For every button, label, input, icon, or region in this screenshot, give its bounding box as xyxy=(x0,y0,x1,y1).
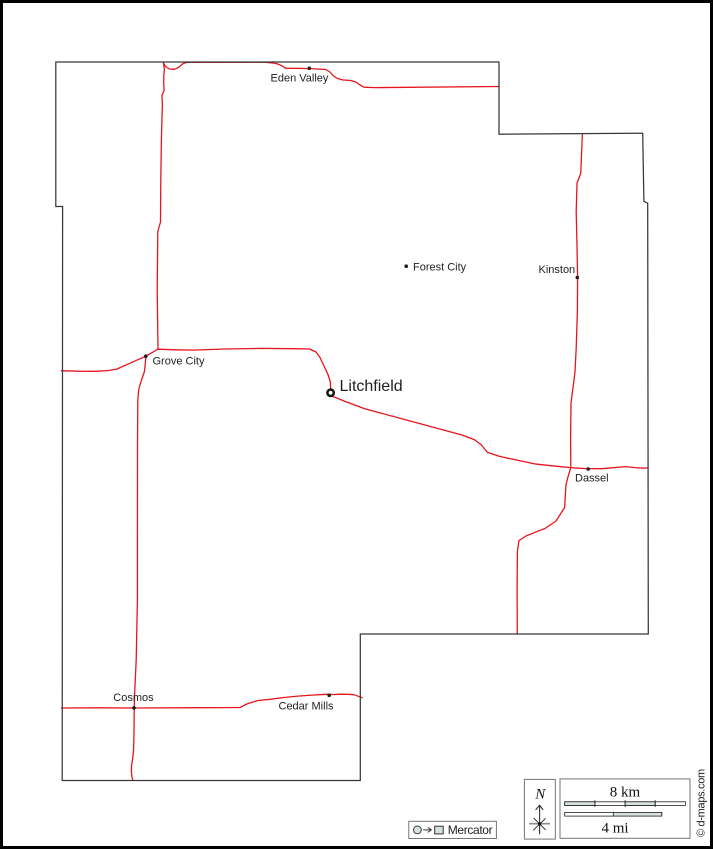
svg-text:Eden Valley: Eden Valley xyxy=(271,73,329,85)
svg-text:Cedar Mills: Cedar Mills xyxy=(279,701,335,713)
svg-text:Litchfield: Litchfield xyxy=(340,378,403,395)
svg-text:© d-maps.com: © d-maps.com xyxy=(695,769,707,837)
svg-text:Dassel: Dassel xyxy=(575,473,609,485)
svg-text:Kinston: Kinston xyxy=(538,264,575,276)
svg-text:8 km: 8 km xyxy=(610,784,641,800)
svg-text:Forest City: Forest City xyxy=(413,261,467,273)
svg-text:4 mi: 4 mi xyxy=(601,821,628,837)
svg-text:Mercator: Mercator xyxy=(448,823,493,837)
svg-text:Grove City: Grove City xyxy=(153,355,205,367)
svg-text:Cosmos: Cosmos xyxy=(113,692,154,704)
svg-text:N: N xyxy=(534,787,546,803)
